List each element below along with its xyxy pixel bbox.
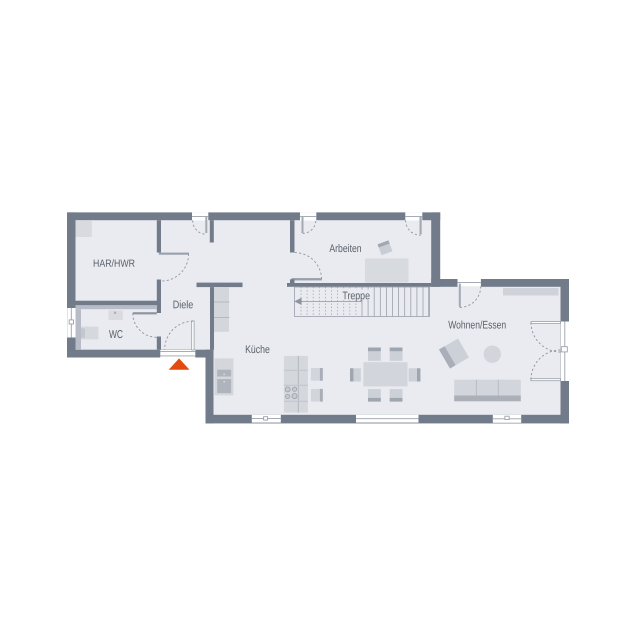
svg-text:Diele: Diele (173, 299, 194, 311)
svg-text:Arbeiten: Arbeiten (329, 243, 361, 255)
svg-text:Treppe: Treppe (342, 290, 370, 302)
svg-text:Wohnen/Essen: Wohnen/Essen (448, 319, 506, 331)
svg-text:WC: WC (109, 329, 123, 341)
svg-text:HAR/HWR: HAR/HWR (93, 259, 135, 270)
svg-text:Küche: Küche (245, 344, 270, 356)
